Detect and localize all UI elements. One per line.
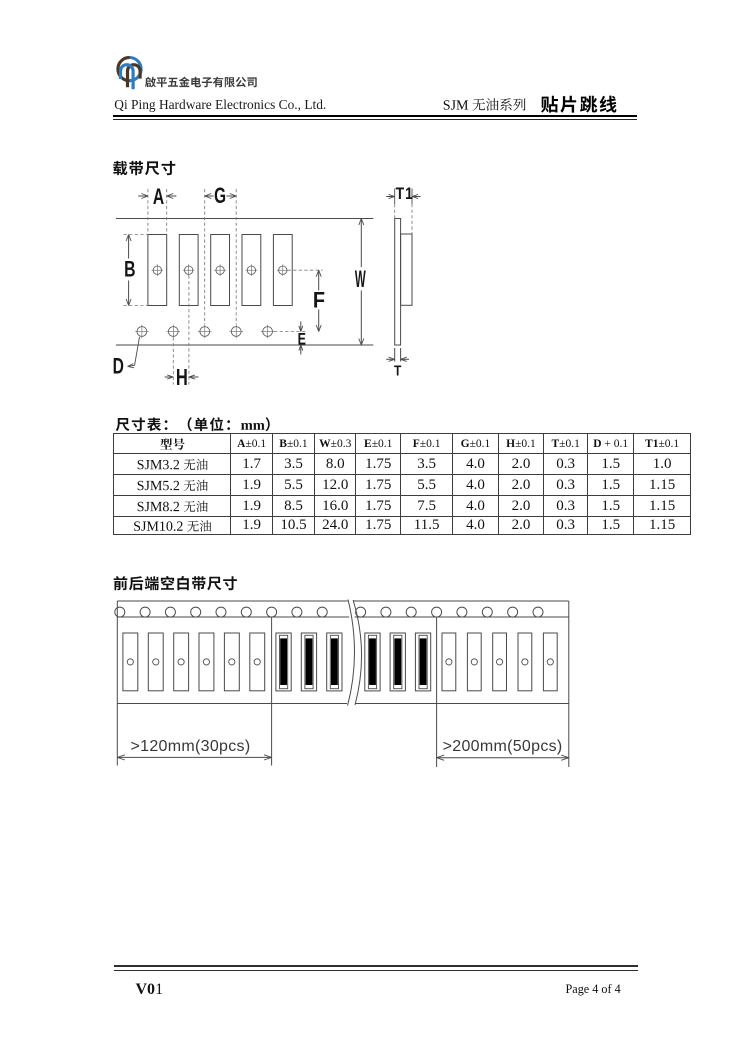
svg-text:W: W	[355, 267, 366, 294]
svg-text:A: A	[153, 186, 164, 210]
svg-text:F: F	[313, 288, 325, 312]
svg-text:T: T	[394, 362, 402, 379]
svg-text:>120mm(30pcs): >120mm(30pcs)	[131, 738, 251, 755]
svg-text:E: E	[298, 331, 307, 349]
svg-text:B: B	[124, 258, 135, 282]
svg-text:G: G	[214, 184, 226, 208]
svg-text:T1: T1	[396, 185, 414, 203]
svg-text:D: D	[113, 354, 124, 380]
svg-text:>200mm(50pcs): >200mm(50pcs)	[443, 738, 563, 755]
svg-text:H: H	[176, 365, 188, 390]
